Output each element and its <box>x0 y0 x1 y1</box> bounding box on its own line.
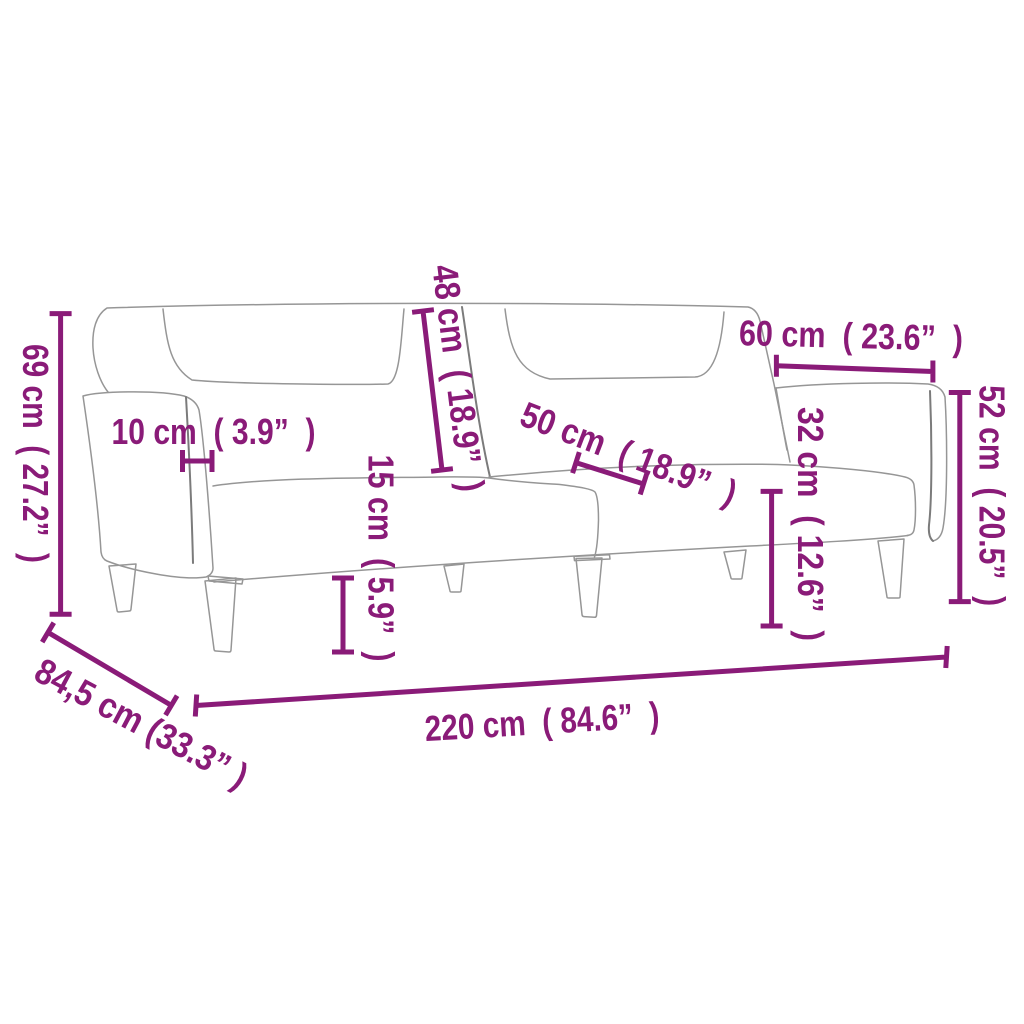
svg-text:52 cm ( 20.5” ): 52 cm ( 20.5” ) <box>972 385 1013 606</box>
svg-text:84,5 cm (33.3” ): 84,5 cm (33.3” ) <box>28 650 255 797</box>
svg-text:32 cm ( 12.6” ): 32 cm ( 12.6” ) <box>790 407 831 641</box>
svg-text:48 cm ( 18.9” ): 48 cm ( 18.9” ) <box>424 262 492 493</box>
svg-text:69 cm ( 27.2” ): 69 cm ( 27.2” ) <box>15 344 56 563</box>
svg-text:10 cm ( 3.9” ): 10 cm ( 3.9” ) <box>112 411 316 452</box>
svg-text:220 cm ( 84.6” ): 220 cm ( 84.6” ) <box>423 694 660 749</box>
svg-text:15 cm ( 5.9” ): 15 cm ( 5.9” ) <box>361 455 402 662</box>
svg-text:50 cm ( 18.9” ): 50 cm ( 18.9” ) <box>515 393 743 513</box>
svg-text:60 cm ( 23.6” ): 60 cm ( 23.6” ) <box>738 312 963 359</box>
